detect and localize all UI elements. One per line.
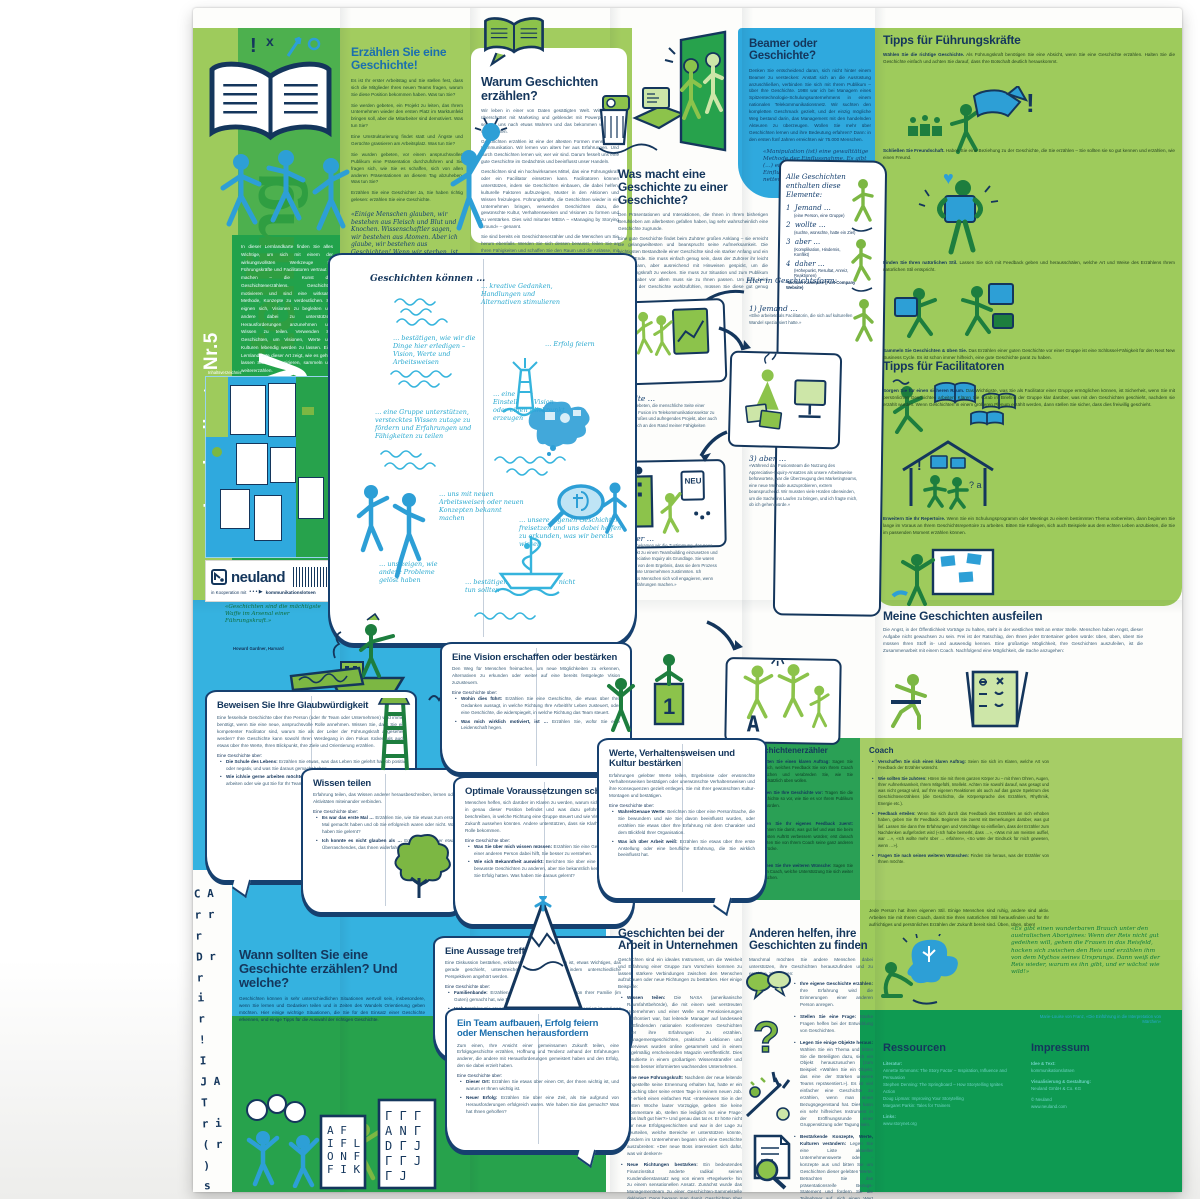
svg-text:A: A bbox=[746, 712, 760, 737]
section-meine: Meine Geschichten ausfeilen Die Angst, i… bbox=[883, 610, 1143, 655]
impressum-line: Idee & Text: bbox=[1031, 1060, 1161, 1067]
section-wann: Wann sollten Sie eine Geschichte erzähle… bbox=[239, 948, 425, 1024]
photo-stage: Lernlandkarte Nr.5 Storytelling !x In di… bbox=[0, 0, 1200, 1199]
ressourcen-line: www.storynet.org bbox=[883, 1120, 1013, 1127]
safe-house-illustration: ! ? a bbox=[893, 436, 1003, 510]
beamer-title: Beamer oder Geschichte? bbox=[749, 38, 871, 63]
werte-bullet: Wahre/Genaue Werte: Berichten Sie über e… bbox=[614, 809, 755, 837]
erzaehler-bullet: Nennen Sie Ihre weiteren Wünsche: Sagen … bbox=[754, 863, 853, 882]
element-sub: (Komplikation, Hindernis, Konflikt) bbox=[794, 247, 856, 257]
green-ladder-illustration bbox=[373, 698, 413, 774]
fork-objects-icon bbox=[741, 1070, 793, 1126]
tip-item: Schließen Sie Freundschaft. Haben Sie ei… bbox=[883, 148, 1175, 162]
book-werte: Werte, Verhaltens­weisen und Kultur best… bbox=[597, 738, 767, 900]
brand-logo-text: neuland bbox=[231, 569, 285, 586]
aborigines-quote: «Es gibt einen wunderbaren Brauch unter … bbox=[1011, 926, 1161, 977]
impressum-line: www.neuland.com bbox=[1031, 1103, 1161, 1110]
coach-bullet: Fragen Sie nach seinen weiteren Wünschen… bbox=[874, 853, 1049, 866]
tip-hug-book-illustration: ♥ bbox=[915, 166, 1007, 258]
erzaehlen-paragraph: Es ist Ihr erster Arbeitstag und Sie ste… bbox=[351, 78, 463, 99]
team-bullet: Neuer Erfolg: Erzählen Sie über eine Zei… bbox=[462, 1095, 619, 1116]
firmen-title: Geschichten bei der Arbeit in Unternehme… bbox=[618, 928, 742, 953]
arrow-icon bbox=[715, 324, 751, 358]
element-item: 4 daher … bbox=[786, 260, 856, 269]
wasmacht-title: Was macht eine Geschichte zu einer Gesch… bbox=[618, 168, 768, 207]
helfen-bullet: Ihre eigene Geschichte erzählen: Ihre Er… bbox=[796, 981, 873, 1009]
ressourcen-line: Margaret Parkin: Tales for Trainers bbox=[883, 1102, 1013, 1109]
helfen-bullet: Legen Sie einige Objekte heraus: Wählen … bbox=[796, 1040, 873, 1130]
svg-text:♥: ♥ bbox=[943, 168, 954, 188]
koennen-phrase: … bestätigen, wie wir die Dinge hier erl… bbox=[393, 334, 479, 366]
podium-winner-illustration: 1 bbox=[597, 644, 707, 740]
arrow-icon bbox=[701, 618, 743, 658]
climbing-figures-illustration bbox=[211, 148, 361, 238]
ressourcen-title: Ressourcen bbox=[883, 1042, 1013, 1054]
koennen-phrase: … eine Gruppe unterstützen, verstecktes … bbox=[375, 408, 493, 440]
tip-item: Sorgen Sie für einen sicheren Raum. Das … bbox=[883, 388, 1175, 409]
squiggle bbox=[473, 608, 593, 624]
tipfac-title: Tipps für Facilitatoren bbox=[883, 360, 1004, 373]
green-book-bubble-icon bbox=[481, 16, 547, 68]
section-tipps-fuehrungskraefte: Tipps für Führungskräfte Wählen Sie die … bbox=[883, 34, 1175, 66]
vision-bullet: Wohin dies führt: Erzählen Sie eine Gesc… bbox=[457, 696, 620, 717]
werte-bullet: Was ich über Arbeit weiß: Erzählen Sie e… bbox=[614, 839, 755, 860]
wissen-body: Erfahrung teilen, das Wissen anderer her… bbox=[313, 792, 457, 806]
minimap-page bbox=[270, 447, 296, 483]
form-step-3: 3) aber … «Während das Fusionsteam die N… bbox=[749, 454, 859, 508]
vision-bullet: Was mich wirklich motiviert, ist … Erzäh… bbox=[457, 719, 620, 733]
wissen-title: Wissen teilen bbox=[313, 779, 457, 789]
impressum-line: Visualisierung & Gestaltung: bbox=[1031, 1078, 1161, 1085]
tipfuehr-title: Tipps für Führungskräfte bbox=[883, 34, 1175, 47]
koennen-lead: Geschichten können … bbox=[370, 274, 485, 285]
coach-bullet: Feedback erteilen: Wenn Sie sich durch d… bbox=[874, 811, 1049, 849]
minimap-page bbox=[254, 495, 282, 541]
team-title: Ein Team aufbauen, Erfolg feiern oder Me… bbox=[457, 1019, 619, 1040]
erzaehler-bullet: Geben Sie Ihr eigenes Feedback zuerst: B… bbox=[754, 821, 853, 852]
wissen-list-lead: Eine Geschichte über: bbox=[313, 809, 457, 814]
book-team: Ein Team aufbauen, Erfolg feiern oder Me… bbox=[445, 1008, 631, 1152]
tip-carry-screens-illustration bbox=[893, 280, 1023, 342]
firmen-bullet: Neue Richtungen bestärken: Ein bedeutend… bbox=[623, 1162, 742, 1199]
svg-text:1: 1 bbox=[663, 694, 675, 719]
ressourcen-line: Annette Simmons: The Story Factor – Insp… bbox=[883, 1067, 1013, 1081]
green-flag-illustration bbox=[283, 660, 373, 694]
element-item: 2 wollte … bbox=[786, 221, 856, 230]
coach-session-illustration bbox=[877, 670, 1067, 736]
minimap-page bbox=[236, 443, 268, 485]
lightbulb-figure-illustration bbox=[429, 116, 519, 246]
ressourcen-line: Stephen Denning: The Springboard – How S… bbox=[883, 1081, 1013, 1095]
svg-text:!: ! bbox=[250, 35, 257, 57]
pirate-ship-illustration bbox=[491, 526, 571, 596]
partner-label: kommunikationslotsen bbox=[266, 590, 316, 595]
minimap-page bbox=[230, 385, 266, 435]
storytelling-poster: Lernlandkarte Nr.5 Storytelling !x In di… bbox=[193, 8, 1182, 1192]
gardner-quote-attr: Howard Gardner, Harvard bbox=[233, 646, 284, 651]
open-book-illustration bbox=[203, 53, 338, 158]
squiggle bbox=[393, 296, 479, 326]
ressourcen-line: Links: bbox=[883, 1113, 1013, 1120]
ressourcen-line: Doug Lipman: Improving Your Storytelling bbox=[883, 1095, 1013, 1102]
form-step-quote: «Elke arbeitete als Facilitatorin, die s… bbox=[749, 313, 857, 326]
helfen-bullet: Bestärkende Konzepte, Werte, Kulturen ve… bbox=[796, 1134, 873, 1199]
section-firmen: Geschichten bei der Arbeit in Unternehme… bbox=[618, 928, 742, 1199]
coach-bullet: Wie sollten Sie zuhören: Hören Sie mit I… bbox=[874, 776, 1049, 807]
tip-item: Erweitern Sie Ihr Repertoire. Wenn Sie e… bbox=[883, 516, 1175, 537]
impressum-line: kommunikationslotsen bbox=[1031, 1067, 1161, 1074]
svg-text:!: ! bbox=[1026, 88, 1035, 118]
impressum-title: Impressum bbox=[1031, 1042, 1161, 1054]
firmen-bullet: Eine neue Führungskraft: Nachdem der neu… bbox=[623, 1075, 742, 1158]
erzaehler-bullet: Tragen Sie Ihre Geschichte vor: Tragen S… bbox=[754, 790, 853, 809]
form-step-label: 3) aber … bbox=[749, 454, 859, 463]
wann-title: Wann sollten Sie eine Geschichte erzähle… bbox=[239, 948, 425, 990]
repertoire-board-illustration bbox=[889, 546, 1019, 606]
coach-title: Coach bbox=[869, 746, 1049, 755]
speech-bubbles-icon bbox=[745, 968, 791, 1004]
form-step-quote: «Während das Fusionsteam die Nutzung des… bbox=[749, 463, 859, 508]
vision-title: Eine Vision erschaffen oder bestärken bbox=[452, 653, 620, 663]
magnifier-document-icon bbox=[741, 1132, 795, 1190]
thought-cloud-illustration bbox=[523, 396, 601, 460]
question-mark-icon: ? bbox=[749, 1010, 789, 1062]
svg-text:!: ! bbox=[917, 457, 922, 473]
doodle-sparks: !x bbox=[248, 30, 328, 64]
vision-list-lead: Eine Geschichte über: bbox=[452, 690, 620, 695]
door-meeting-illustration bbox=[661, 30, 745, 160]
tip-item: Wählen Sie die richtige Geschichte. Als … bbox=[883, 52, 1175, 66]
blue-figure-couple-illustration bbox=[343, 478, 453, 588]
tip-item: Finden Sie Ihren natürlichen Stil. Lasse… bbox=[883, 260, 1175, 274]
wasmacht-paragraph: Den Präsentationen und Interaktionen, di… bbox=[618, 212, 768, 233]
comic-panel-2 bbox=[728, 351, 842, 450]
impressum-line: Neuland GmbH & Co. KG bbox=[1031, 1085, 1161, 1092]
logo-block: neuland in Kooperation mit • • • ▶ kommu… bbox=[205, 560, 333, 602]
section-ressourcen: Ressourcen Literatur: Annette Simmons: T… bbox=[883, 1042, 1013, 1127]
team-body: Zum einen, Ihre Ansicht einer gemeinsame… bbox=[457, 1043, 619, 1071]
elements-lead: Alle Geschichten enthalten diese Element… bbox=[786, 173, 856, 199]
coach-bullet: Verschaffen Sie sich einen klaren Auftra… bbox=[874, 759, 1049, 772]
intro-text: In dieser Lernlandkarte finden Sie alles… bbox=[241, 243, 333, 375]
svg-text:? a: ? a bbox=[969, 480, 982, 490]
element-sub: (eine Person, eine Gruppe) bbox=[794, 213, 856, 218]
table-coach-col: Coach Verschaffen Sie sich einen klaren … bbox=[869, 746, 1049, 867]
dots-arrow-icon: • • • ▶ bbox=[249, 589, 262, 595]
firmen-body: Geschichten sind ein ideales Instrument,… bbox=[618, 957, 742, 991]
storyteller-plant-illustration bbox=[873, 934, 983, 1008]
form-label: Hier in Geschichtsform: bbox=[746, 276, 837, 285]
city-buildings-illustration: A FI F LO N FF I K Γ Γ ΓA N ΓD Γ JΓ Γ JΓ… bbox=[313, 1098, 443, 1192]
helfen-title: Anderen helfen, ihre Geschichten zu find… bbox=[749, 928, 873, 953]
meine-body: Die Angst, in der Öffentlichkeit Vorträg… bbox=[883, 627, 1143, 655]
vision-body: Den Weg für Menschen freimachen, um neue… bbox=[452, 666, 620, 687]
element-item: 3 aber … bbox=[786, 238, 856, 247]
element-item: 1 Jemand … bbox=[786, 204, 856, 213]
team-bullet: Dieser Ort: Erzählen Sie etwas über eine… bbox=[462, 1079, 619, 1093]
elements-list: Alle Geschichten enthalten diese Element… bbox=[786, 173, 856, 290]
green-figure-steps-illustration bbox=[848, 176, 878, 356]
minimap-page bbox=[268, 383, 296, 437]
celebration-figures-illustration: A bbox=[726, 659, 835, 737]
svg-text:NEU: NEU bbox=[685, 476, 702, 485]
ressourcen-line: Literatur: bbox=[883, 1060, 1013, 1067]
impressum-line: © Neuland bbox=[1031, 1096, 1161, 1103]
svg-text:?: ? bbox=[753, 1013, 780, 1062]
helfen-bullet: Stellen Sie eine Frage: Starke Fragen he… bbox=[796, 1014, 873, 1035]
minimap-lightgreen-zone bbox=[206, 377, 228, 437]
minimap-green-dot bbox=[212, 447, 222, 457]
beamer-body: Denken Sie entscheidend daran, sich nich… bbox=[749, 68, 871, 144]
meine-title: Meine Geschichten ausfeilen bbox=[883, 610, 1143, 623]
squiggle bbox=[379, 448, 479, 472]
squiggle bbox=[389, 368, 509, 390]
section-impressum: Impressum Idee & Text: kommunikationslot… bbox=[1031, 1042, 1161, 1110]
koennen-phrase: … kreative Gedanken, Handlungen und Alte… bbox=[481, 282, 577, 306]
aborigines-quote-attr: Marie-Louise von Franz, «Die Einführung … bbox=[1031, 1014, 1161, 1024]
coop-label: in Kooperation mit bbox=[211, 590, 246, 595]
minimap-page bbox=[220, 489, 250, 529]
minimap-page bbox=[298, 477, 324, 519]
minimap-label: Inhaltsverzeichnis bbox=[208, 370, 241, 375]
overwhelmed-figure-illustration bbox=[730, 353, 836, 442]
minimap: Inhaltsverzeichnis bbox=[205, 376, 335, 558]
erzaehler-bullet: Erbitten Sie einen klaren Auftrag: Sagen… bbox=[754, 759, 853, 784]
werte-body: Erfahrungen gelebter Werte teilen, Ergeb… bbox=[609, 773, 755, 801]
comic-panel-4: A bbox=[724, 657, 841, 745]
koennen-phrase: … Erfolg feiern bbox=[545, 340, 607, 348]
arrow-icon bbox=[693, 428, 733, 464]
svg-text:x: x bbox=[266, 33, 274, 49]
form-step-label: 1) Jemand … bbox=[749, 304, 857, 313]
werte-list-lead: Eine Geschichte über: bbox=[609, 803, 755, 808]
werte-title: Werte, Verhaltens­weisen und Kultur best… bbox=[609, 749, 755, 770]
gardner-quote: «Geschichten sind die mächtigste Waffe i… bbox=[225, 604, 325, 625]
minimap-green-dot bbox=[302, 407, 314, 415]
team-list-lead: Eine Geschichte über: bbox=[457, 1073, 619, 1078]
intro-paragraph: In dieser Lernlandkarte finden Sie alles… bbox=[241, 244, 333, 373]
mountain-illustration bbox=[493, 896, 593, 1016]
wann-body: Geschichten können in sehr unterschiedli… bbox=[239, 996, 425, 1024]
form-step-1: 1) Jemand … «Elke arbeitete als Facilita… bbox=[749, 304, 857, 326]
element-sub: (suchte, wünschte, hatte ein Ziel) bbox=[794, 230, 856, 235]
neuland-logo-icon bbox=[211, 569, 227, 585]
erzaehlen-title: Erzählen Sie eine Geschichte! bbox=[351, 46, 463, 72]
tree-illustration bbox=[389, 830, 453, 902]
barcode bbox=[293, 567, 327, 587]
firmen-bullet: Wissen teilen: Die NASA (amerikanische R… bbox=[623, 995, 742, 1071]
